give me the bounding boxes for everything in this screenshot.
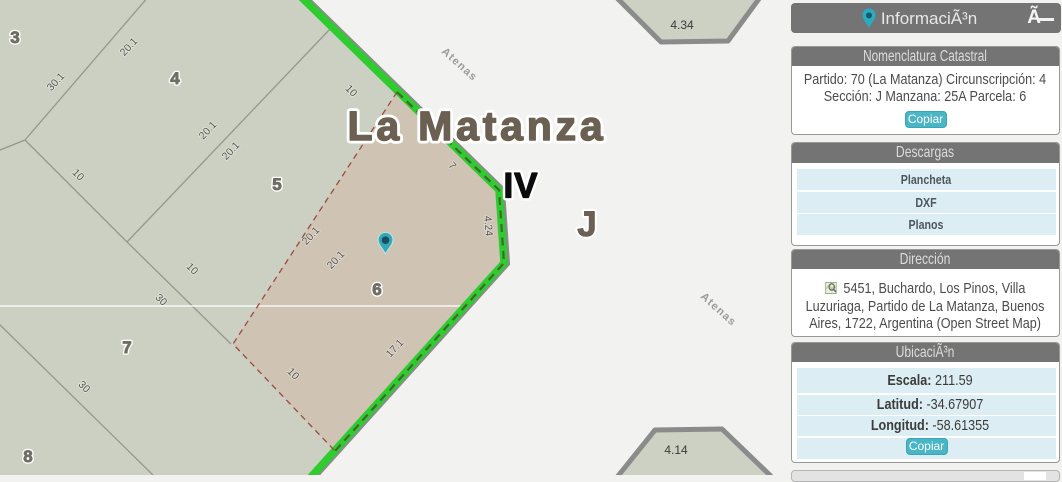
svg-text:8: 8 — [23, 447, 32, 466]
svg-text:3: 3 — [10, 28, 19, 47]
svg-text:4.14: 4.14 — [664, 443, 688, 457]
svg-text:4: 4 — [170, 69, 180, 88]
svg-text:4.24: 4.24 — [481, 215, 495, 237]
svg-text:5: 5 — [272, 175, 281, 194]
svg-text:7: 7 — [122, 338, 131, 357]
svg-text:IV: IV — [503, 167, 538, 206]
svg-text:6: 6 — [372, 280, 381, 299]
svg-text:La Matanza: La Matanza — [348, 103, 607, 149]
svg-text:4.34: 4.34 — [670, 18, 694, 32]
svg-text:J: J — [577, 205, 596, 244]
